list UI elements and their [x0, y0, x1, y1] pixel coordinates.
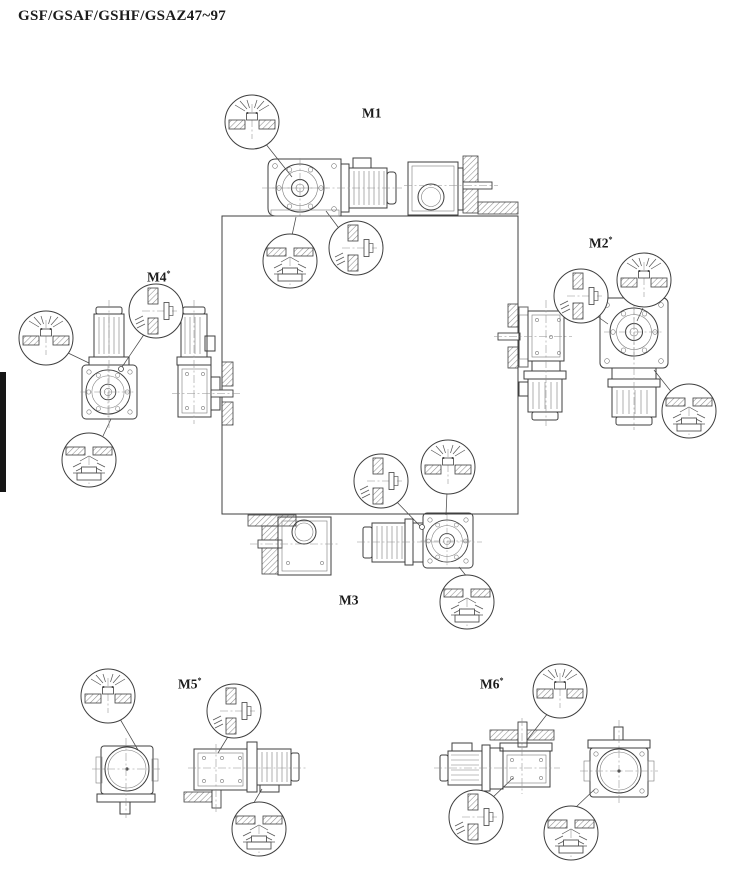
- m4-breather-valve-up-callout: [19, 311, 73, 365]
- label-m4: M4*: [147, 269, 171, 286]
- m6-gearmotor-front-view: [580, 720, 658, 803]
- m2-oil-drain-plug-callout: [662, 384, 716, 438]
- label-m5: M5*: [178, 676, 202, 693]
- m2-gearmotor-front-view: [600, 292, 668, 430]
- m3-gearmotor-front-view: [357, 513, 482, 568]
- position-m4-group: [19, 284, 240, 487]
- m3-gearmotor-side-view: [248, 515, 340, 575]
- m4-breather-valve-side-callout: [129, 284, 183, 338]
- m2-callout-leader-lines: [594, 308, 673, 394]
- m1-breather-valve-side-callout: [329, 221, 383, 275]
- position-m6-group: [434, 664, 658, 860]
- m4-oil-drain-plug-callout: [62, 433, 116, 487]
- position-m5-group: [81, 669, 306, 856]
- label-m1: M1: [362, 105, 382, 122]
- position-m2-group: [494, 253, 716, 438]
- m5-gearmotor-front-view: [92, 738, 162, 818]
- label-m3: M3: [339, 592, 359, 609]
- m5-breather-valve-side-callout: [207, 684, 261, 738]
- label-m6: M6*: [480, 676, 504, 693]
- m4-gearmotor-front-view: [80, 300, 137, 428]
- m6-breather-valve-side-callout: [449, 790, 503, 844]
- position-m1-group: [225, 95, 518, 288]
- mounting-positions-diagram: [0, 0, 749, 893]
- m3-oil-drain-plug-callout: [440, 575, 494, 629]
- m1-oil-drain-plug-callout: [263, 234, 317, 288]
- m3-breather-valve-side-callout: [354, 454, 408, 508]
- m3-breather-valve-up-callout: [421, 440, 475, 494]
- catalog-page: GSF/GSAF/GSHF/GSAZ47~97: [0, 0, 749, 893]
- label-m2: M2*: [589, 235, 613, 252]
- m1-breather-valve-up-callout: [225, 95, 279, 149]
- position-m3-group: [248, 440, 494, 629]
- m6-gearmotor-side-view: [434, 718, 560, 794]
- m2-gearmotor-side-view: [494, 300, 572, 426]
- m1-gearmotor-side-view: [404, 156, 518, 215]
- m5-gearmotor-side-view: [184, 742, 306, 812]
- m2-breather-valve-side-callout: [554, 269, 608, 323]
- m5-breather-valve-up-callout: [81, 669, 135, 723]
- m6-breather-valve-up-callout: [533, 664, 587, 718]
- m5-oil-drain-plug-callout: [232, 802, 286, 856]
- m6-oil-drain-plug-callout: [544, 806, 598, 860]
- m1-gearmotor-front-view: [262, 158, 402, 218]
- m2-breather-valve-up-callout: [617, 253, 671, 307]
